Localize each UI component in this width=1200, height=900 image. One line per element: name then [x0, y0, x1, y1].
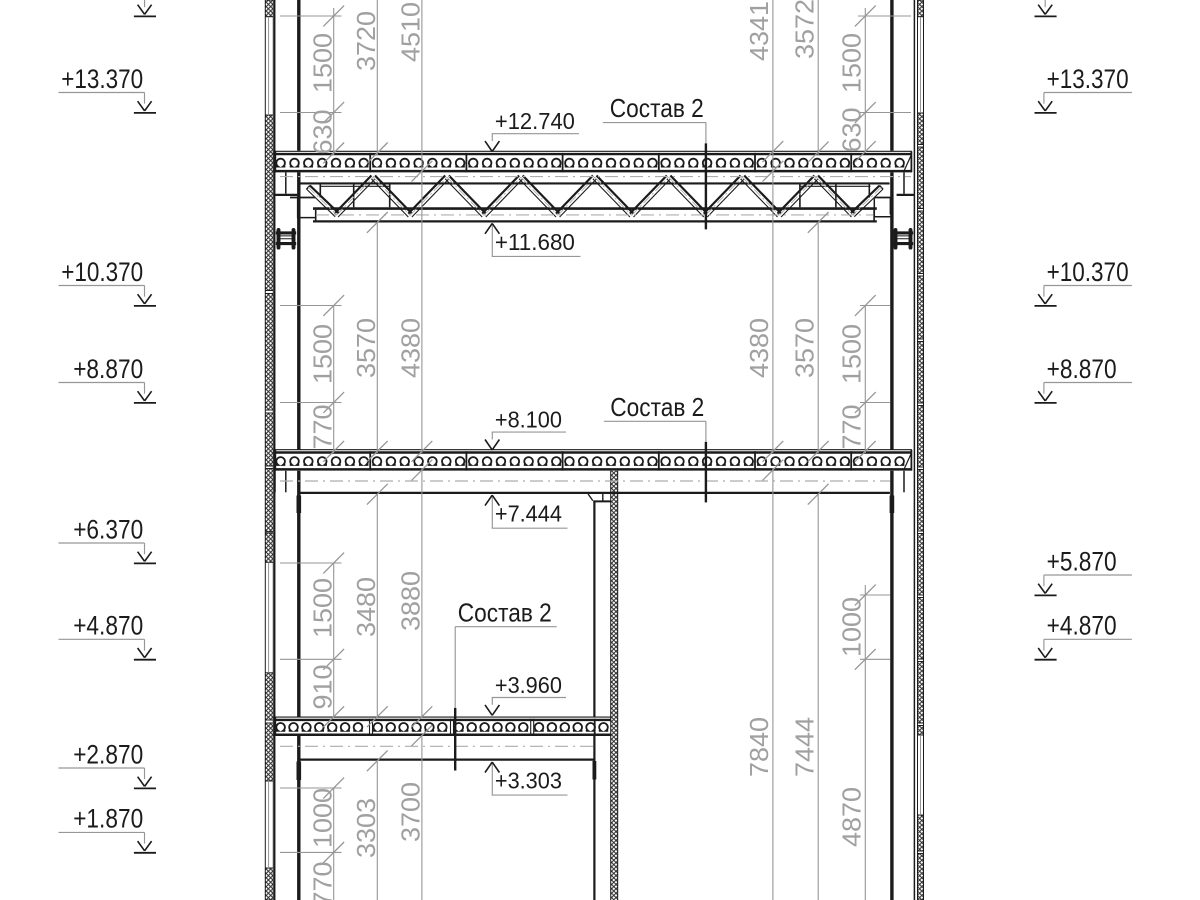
svg-text:770: 770 [837, 405, 867, 450]
svg-text:1000: 1000 [308, 788, 338, 848]
svg-text:1500: 1500 [308, 324, 338, 384]
svg-text:+3.303: +3.303 [495, 768, 562, 794]
svg-text:+3.960: +3.960 [495, 672, 562, 698]
svg-text:1500: 1500 [837, 33, 867, 93]
svg-text:4380: 4380 [396, 318, 426, 378]
svg-text:3880: 3880 [396, 571, 426, 631]
svg-text:4870: 4870 [837, 787, 867, 847]
svg-text:4380: 4380 [744, 318, 774, 378]
svg-text:910: 910 [308, 665, 338, 710]
svg-text:+8.100: +8.100 [495, 407, 562, 433]
svg-text:1500: 1500 [308, 33, 338, 93]
svg-text:3480: 3480 [351, 577, 381, 637]
svg-text:770: 770 [308, 405, 338, 450]
svg-text:+4.870: +4.870 [73, 611, 143, 641]
svg-text:1000: 1000 [837, 597, 867, 657]
svg-text:+12.740: +12.740 [495, 108, 575, 134]
svg-text:+2.870: +2.870 [73, 739, 143, 769]
svg-text:Состав 2: Состав 2 [458, 597, 552, 627]
svg-text:3700: 3700 [396, 782, 426, 842]
svg-text:+6.370: +6.370 [73, 514, 143, 544]
svg-text:7840: 7840 [744, 717, 774, 777]
svg-text:7444: 7444 [789, 717, 819, 777]
svg-text:+7.444: +7.444 [495, 501, 562, 527]
svg-text:3303: 3303 [351, 798, 381, 858]
svg-text:3570: 3570 [789, 318, 819, 378]
svg-text:1500: 1500 [308, 578, 338, 638]
svg-text:+4.870: +4.870 [1047, 611, 1117, 641]
svg-text:+13.370: +13.370 [1047, 64, 1129, 94]
svg-text:3720: 3720 [351, 11, 381, 71]
svg-text:+11.680: +11.680 [495, 229, 575, 255]
svg-text:Состав 2: Состав 2 [610, 93, 704, 123]
svg-text:+8.870: +8.870 [73, 354, 143, 384]
svg-text:770: 770 [308, 862, 338, 900]
svg-text:Состав 2: Состав 2 [610, 392, 704, 422]
svg-text:630: 630 [308, 110, 338, 155]
svg-text:+1.870: +1.870 [73, 804, 143, 834]
svg-text:+10.370: +10.370 [1047, 257, 1129, 287]
svg-text:3572: 3572 [789, 0, 819, 59]
svg-text:+5.870: +5.870 [1047, 546, 1117, 576]
svg-text:1500: 1500 [837, 324, 867, 384]
svg-text:+13.370: +13.370 [61, 64, 143, 94]
svg-text:3570: 3570 [351, 318, 381, 378]
svg-text:+10.370: +10.370 [61, 257, 143, 287]
svg-text:+8.870: +8.870 [1047, 354, 1117, 384]
svg-text:630: 630 [837, 108, 867, 153]
svg-text:4341: 4341 [744, 1, 774, 61]
svg-text:4510: 4510 [396, 2, 426, 62]
